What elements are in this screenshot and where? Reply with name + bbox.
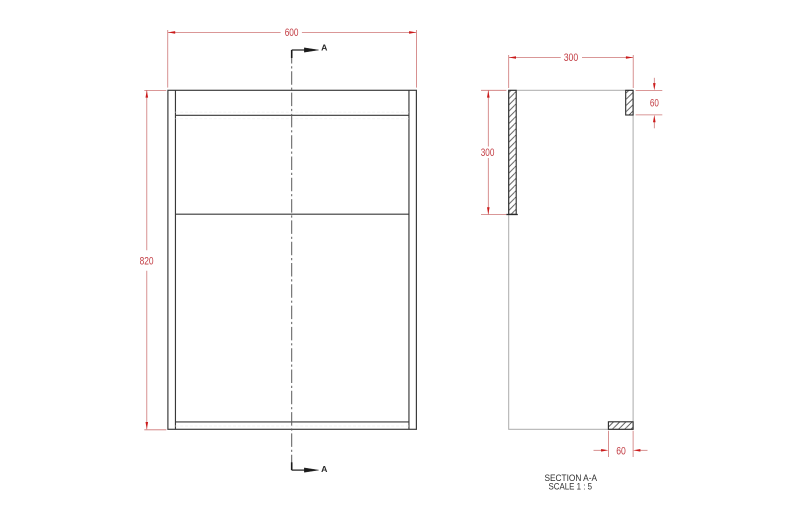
- svg-text:300: 300: [481, 147, 495, 159]
- svg-text:60: 60: [616, 446, 626, 458]
- svg-text:SCALE 1 : 5: SCALE 1 : 5: [549, 482, 593, 492]
- svg-text:600: 600: [285, 27, 299, 39]
- svg-text:300: 300: [564, 52, 579, 64]
- svg-text:A: A: [321, 464, 327, 474]
- svg-text:A: A: [321, 43, 327, 53]
- svg-text:820: 820: [140, 255, 154, 267]
- svg-text:60: 60: [650, 98, 659, 110]
